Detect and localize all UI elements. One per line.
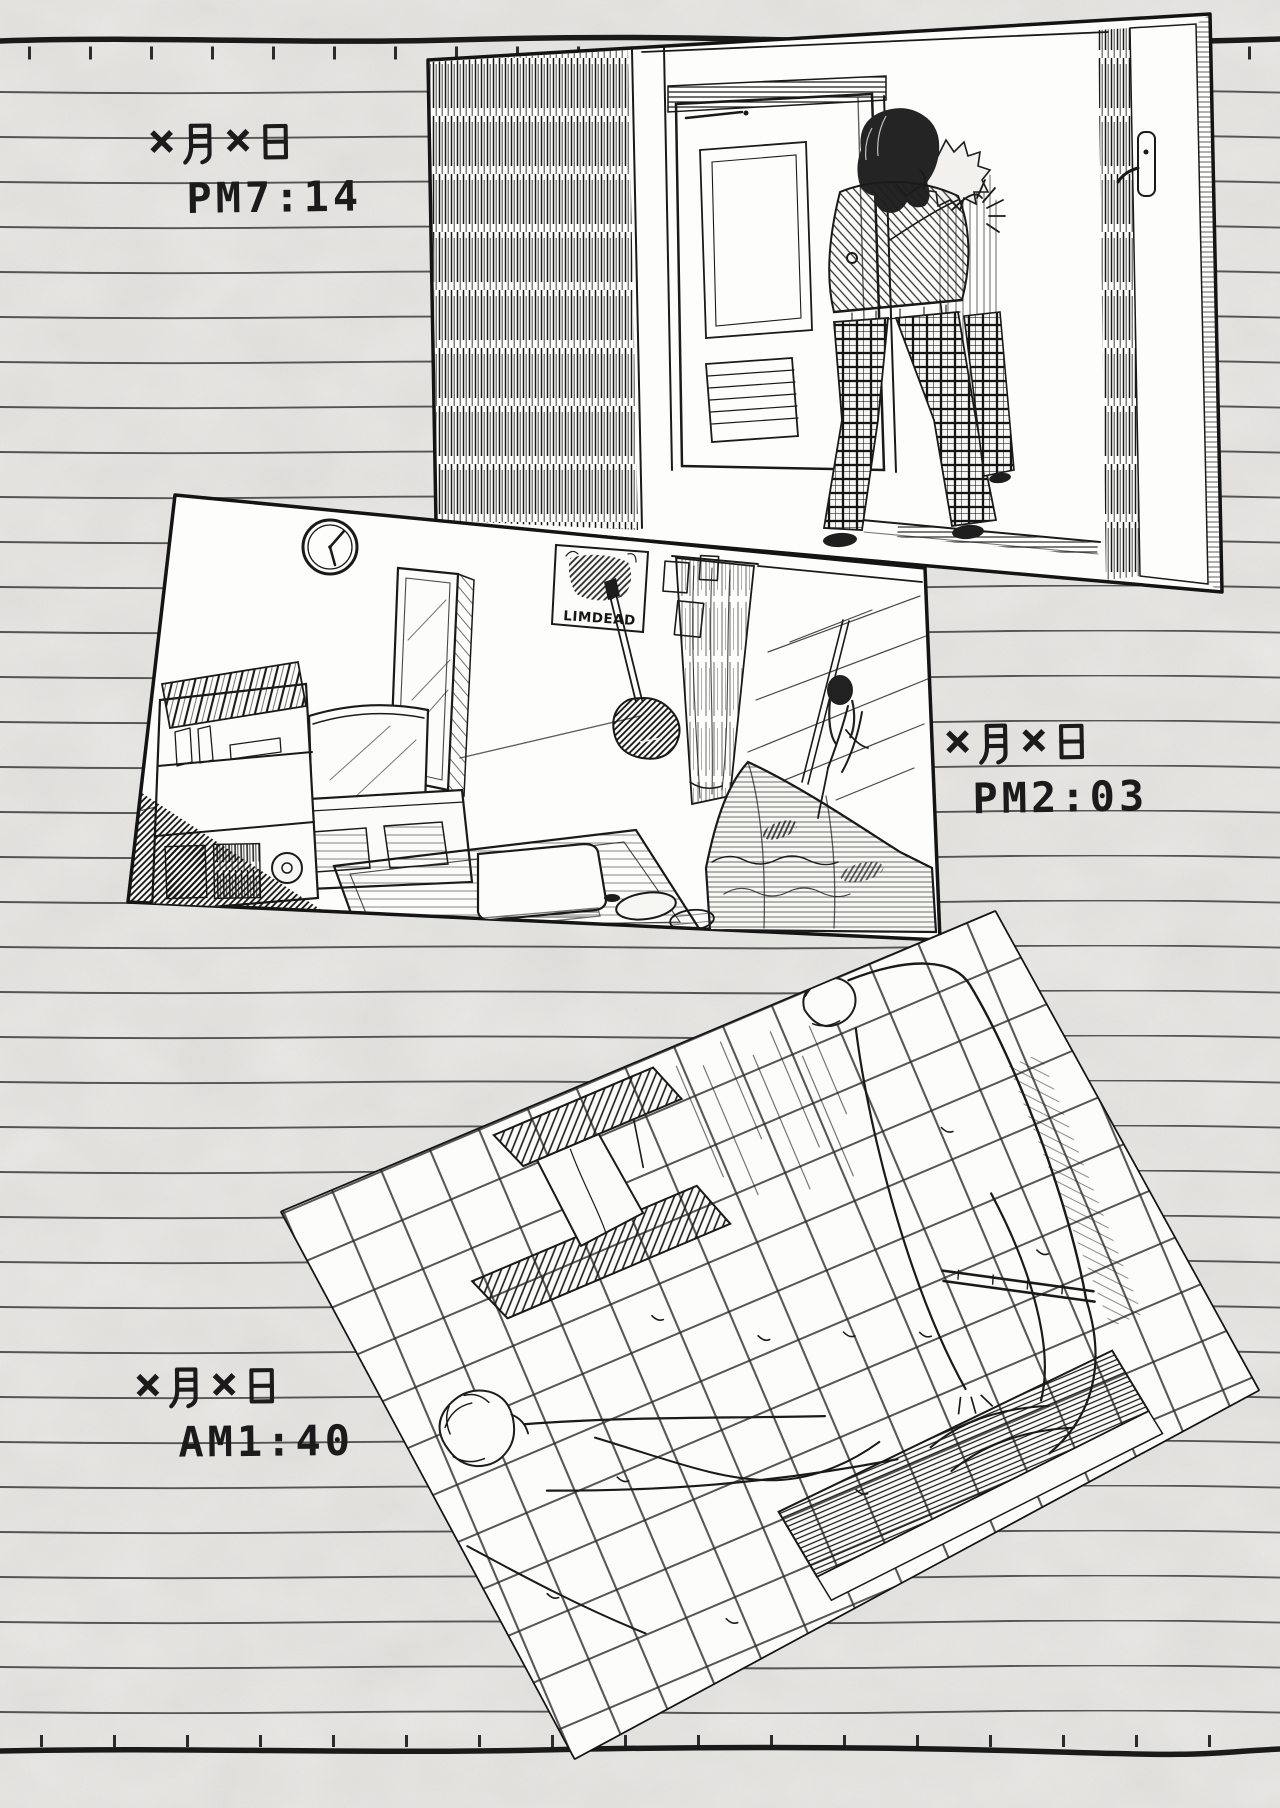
date-label: × × bbox=[133, 1361, 353, 1410]
panel-1-entryway bbox=[428, 14, 1222, 592]
date-label: × × bbox=[147, 117, 361, 167]
front-door-edge bbox=[1098, 14, 1222, 592]
cross-glyph: × bbox=[1019, 716, 1048, 763]
time-label: PM2:03 bbox=[972, 771, 1149, 823]
cross-glyph: × bbox=[210, 1360, 239, 1407]
timestamp-entry-1: × × PM7:14 bbox=[147, 117, 362, 224]
door-lock-plate bbox=[1138, 132, 1155, 196]
striped-jacket bbox=[829, 182, 968, 312]
cross-glyph: × bbox=[147, 117, 176, 164]
kanji-day-icon bbox=[243, 1363, 279, 1407]
time-label: AM1:40 bbox=[178, 1416, 354, 1467]
low-table bbox=[478, 844, 606, 928]
timestamp-entry-2: × × PM2:03 bbox=[943, 716, 1149, 824]
cross-glyph: × bbox=[133, 1361, 162, 1408]
kanji-month-icon bbox=[181, 120, 220, 165]
poster-art-scribble bbox=[569, 555, 631, 601]
dark-wall-hatching bbox=[430, 50, 638, 530]
page-artwork: LIMDEAD bbox=[0, 0, 1280, 1808]
kanji-day-icon bbox=[257, 119, 294, 163]
speaker-icon bbox=[272, 853, 302, 883]
cross-glyph: × bbox=[224, 116, 253, 163]
date-label: × × bbox=[943, 716, 1148, 767]
kanji-month-icon bbox=[976, 720, 1015, 765]
panel-2-bedroom: LIMDEAD bbox=[118, 495, 940, 948]
cross-glyph: × bbox=[943, 717, 972, 764]
kanji-month-icon bbox=[167, 1364, 205, 1408]
time-label: PM7:14 bbox=[186, 172, 362, 223]
kanji-day-icon bbox=[1053, 719, 1090, 764]
manga-diary-page: LIMDEAD bbox=[0, 0, 1280, 1808]
timestamp-entry-3: × × AM1:40 bbox=[133, 1361, 354, 1467]
band-poster: LIMDEAD bbox=[552, 545, 648, 632]
